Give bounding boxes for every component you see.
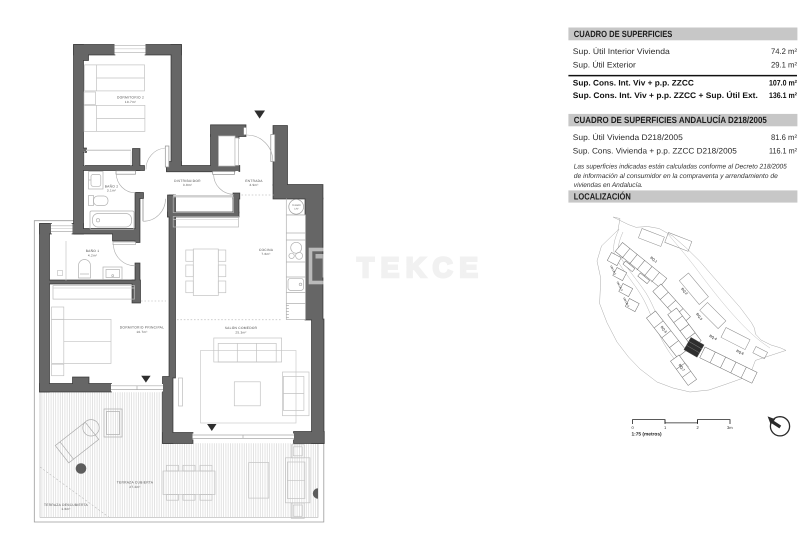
svg-text:TEKCE: TEKCE bbox=[357, 252, 484, 283]
svg-text:TERRAZA CUBIERTA: TERRAZA CUBIERTA bbox=[117, 480, 154, 484]
svg-text:10.7m²: 10.7m² bbox=[125, 100, 136, 104]
svg-text:4.2m²: 4.2m² bbox=[88, 253, 97, 257]
svg-text:1:75 (metros): 1:75 (metros) bbox=[632, 432, 663, 438]
svg-text:LAV: LAV bbox=[294, 208, 299, 211]
svg-text:3m: 3m bbox=[727, 425, 733, 430]
svg-text:SALÓN COMEDOR: SALÓN COMEDOR bbox=[225, 326, 258, 330]
svg-text:Sup. Útil Interior Vivienda: Sup. Útil Interior Vivienda bbox=[573, 47, 671, 56]
svg-text:27.2m²: 27.2m² bbox=[129, 485, 140, 489]
svg-text:DORMITORIO 2: DORMITORIO 2 bbox=[117, 95, 144, 99]
svg-text:de información al consumidor e: de información al consumidor en la compr… bbox=[574, 173, 778, 180]
svg-text:CUADRO DE SUPERFICIES ANDALUCÍ: CUADRO DE SUPERFICIES ANDALUCÍA D218/200… bbox=[574, 115, 767, 125]
svg-text:TERMO: TERMO bbox=[292, 204, 301, 207]
svg-text:10.7m²: 10.7m² bbox=[136, 330, 147, 334]
svg-text:29.1 m²: 29.1 m² bbox=[771, 61, 797, 70]
svg-text:DORMITORIO PRINCIPAL: DORMITORIO PRINCIPAL bbox=[120, 325, 164, 329]
svg-text:74.2 m²: 74.2 m² bbox=[771, 47, 797, 56]
svg-text:Sup. Útil Vivienda D218/2005: Sup. Útil Vivienda D218/2005 bbox=[573, 133, 684, 142]
svg-text:81.6 m²: 81.6 m² bbox=[771, 133, 797, 142]
svg-text:107.0 m²: 107.0 m² bbox=[769, 79, 797, 88]
svg-text:CUADRO DE SUPERFICIES: CUADRO DE SUPERFICIES bbox=[574, 29, 673, 39]
svg-text:116.1 m²: 116.1 m² bbox=[769, 146, 797, 155]
svg-text:Sup. Útil Exterior: Sup. Útil Exterior bbox=[573, 61, 636, 70]
svg-text:LOCALIZACIÓN: LOCALIZACIÓN bbox=[574, 192, 631, 202]
svg-text:1.6m²: 1.6m² bbox=[61, 507, 70, 511]
svg-text:7.6m²: 7.6m² bbox=[261, 252, 270, 256]
svg-text:3.1m²: 3.1m² bbox=[107, 189, 116, 193]
svg-text:3.9m²: 3.9m² bbox=[249, 183, 258, 187]
svg-text:Las superficies indicadas está: Las superficies indicadas están calculad… bbox=[574, 164, 787, 171]
svg-text:Sup. Cons. Int. Viv + p.p. ZZC: Sup. Cons. Int. Viv + p.p. ZZCC + Sup. Ú… bbox=[573, 90, 758, 100]
svg-text:Sup. Cons. Vivienda + p.p. ZZC: Sup. Cons. Vivienda + p.p. ZZCC D218/200… bbox=[573, 146, 738, 155]
svg-text:Sup. Cons. Int. Viv + p.p. ZZC: Sup. Cons. Int. Viv + p.p. ZZCC bbox=[573, 79, 694, 88]
svg-text:25.3m²: 25.3m² bbox=[235, 330, 246, 334]
svg-text:3.8m²: 3.8m² bbox=[183, 183, 192, 187]
svg-text:136.1 m²: 136.1 m² bbox=[769, 91, 797, 100]
svg-text:viviendas en Andalucía.: viviendas en Andalucía. bbox=[574, 182, 643, 189]
